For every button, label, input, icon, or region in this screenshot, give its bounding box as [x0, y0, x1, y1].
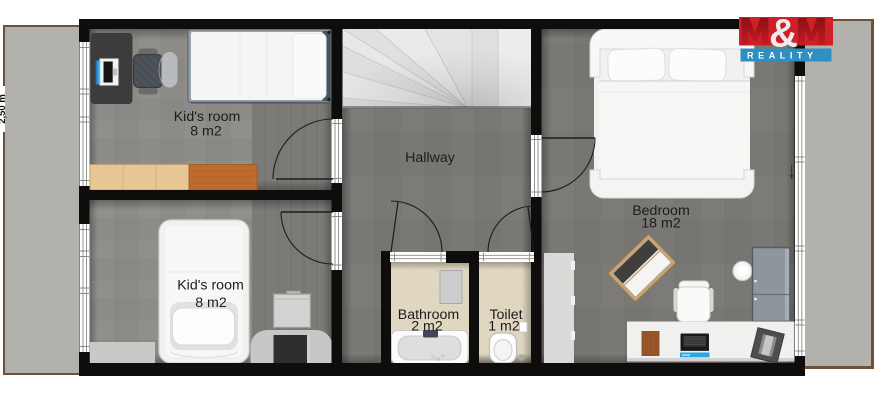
svg-text:Kid's room: Kid's room	[177, 277, 244, 293]
svg-text:8 m2: 8 m2	[190, 124, 222, 140]
svg-text:1 m2: 1 m2	[488, 318, 520, 334]
svg-text:8 m2: 8 m2	[195, 295, 227, 311]
svg-text:REALITY: REALITY	[747, 50, 818, 60]
svg-text:Hallway: Hallway	[405, 150, 456, 166]
svg-text:2,50 m: 2,50 m	[0, 94, 8, 124]
svg-text:2 m2: 2 m2	[411, 318, 443, 334]
svg-text:18 m2: 18 m2	[641, 216, 681, 232]
